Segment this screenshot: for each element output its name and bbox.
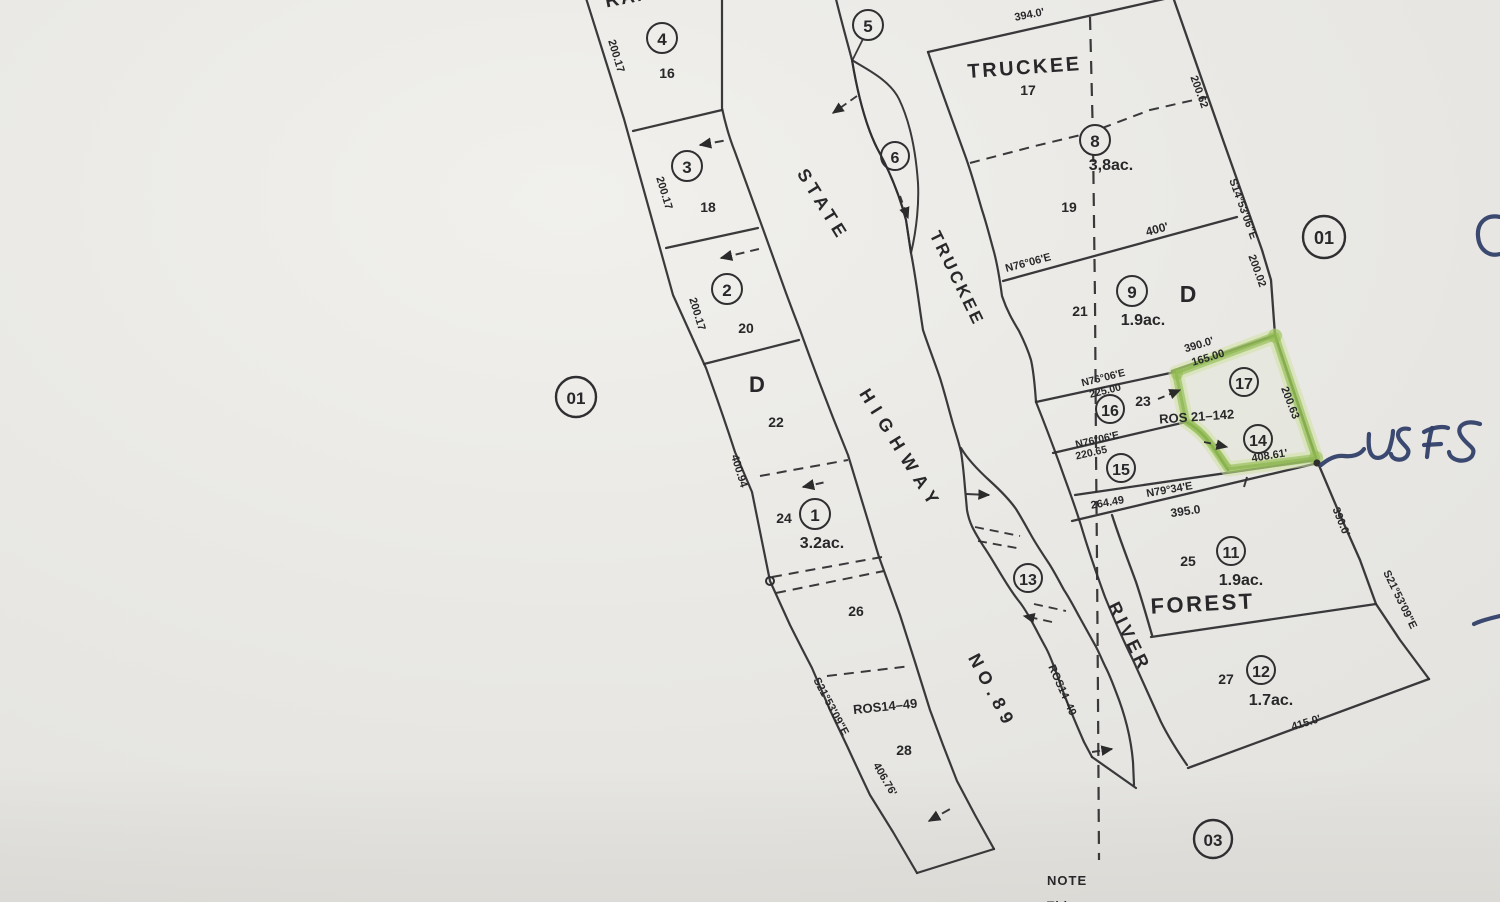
svg-text:23: 23 [1135,393,1151,409]
svg-text:13: 13 [1019,572,1037,589]
svg-text:1: 1 [810,506,819,525]
svg-text:8: 8 [1090,132,1099,151]
svg-text:27: 27 [1218,671,1234,687]
svg-text:22: 22 [768,414,784,430]
svg-text:1.7ac.: 1.7ac. [1249,692,1293,709]
svg-text:18: 18 [700,199,716,215]
svg-text:01: 01 [567,389,586,408]
svg-text:9: 9 [1127,283,1136,302]
svg-text:24: 24 [776,510,792,526]
svg-text:3: 3 [682,158,691,177]
svg-text:D: D [1180,281,1197,307]
svg-text:14: 14 [1249,433,1267,450]
svg-text:16: 16 [659,65,675,81]
svg-text:2: 2 [722,281,731,300]
svg-text:21: 21 [1072,303,1088,319]
svg-text:3,8ac.: 3,8ac. [1089,157,1133,174]
svg-text:15: 15 [1112,462,1130,479]
svg-text:16: 16 [1101,403,1119,420]
svg-text:D: D [749,372,765,397]
svg-text:NOTE: NOTE [1047,873,1087,888]
svg-text:12: 12 [1252,664,1270,681]
svg-text:6: 6 [891,150,900,167]
svg-text:1.9ac.: 1.9ac. [1219,572,1263,589]
svg-text:01: 01 [1314,228,1334,248]
svg-text:28: 28 [896,742,912,758]
svg-text:4: 4 [657,30,667,49]
svg-text:19: 19 [1061,199,1077,215]
svg-text:25: 25 [1180,553,1196,569]
svg-text:1.9ac.: 1.9ac. [1121,312,1165,329]
svg-text:17: 17 [1020,82,1036,98]
svg-text:17: 17 [1235,376,1253,393]
svg-text:20: 20 [738,320,754,336]
svg-text:03: 03 [1204,831,1223,850]
svg-text:3.2ac.: 3.2ac. [800,535,844,552]
svg-text:11: 11 [1223,545,1240,562]
svg-text:26: 26 [848,603,864,619]
svg-text:5: 5 [863,17,872,36]
